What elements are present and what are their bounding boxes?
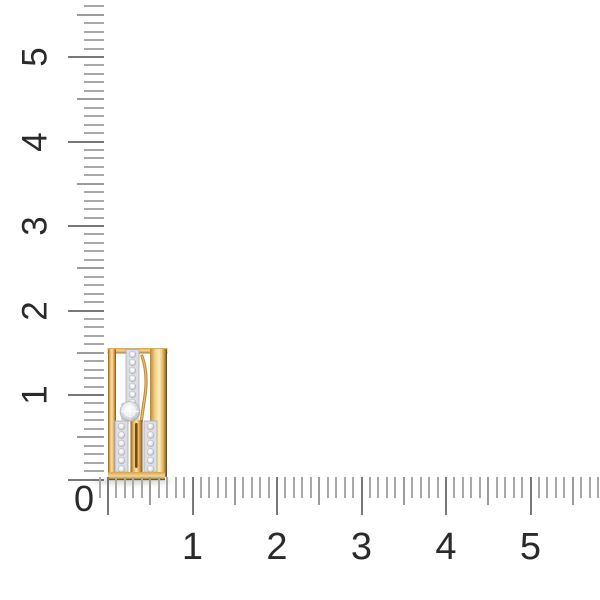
- vertical-ruler-tick: [84, 386, 104, 388]
- horizontal-ruler-tick: [175, 477, 177, 498]
- horizontal-ruler-major-tick: [361, 477, 363, 515]
- horizontal-ruler-tick: [149, 477, 151, 505]
- vertical-ruler-number-5: 5: [18, 47, 53, 66]
- horizontal-ruler-tick: [403, 477, 405, 505]
- horizontal-ruler-number-5: 5: [520, 528, 541, 566]
- vertical-ruler-tick: [84, 377, 104, 379]
- vertical-ruler-tick: [84, 276, 104, 278]
- earring-center-post: [131, 420, 143, 472]
- vertical-ruler-number-3: 3: [18, 216, 53, 235]
- vertical-ruler-tick: [84, 208, 104, 210]
- vertical-ruler-tick: [84, 402, 104, 404]
- horizontal-ruler-tick: [327, 477, 329, 498]
- horizontal-ruler-tick: [496, 477, 498, 498]
- horizontal-ruler-major-tick: [445, 477, 447, 515]
- horizontal-ruler-tick: [546, 477, 548, 498]
- vertical-ruler-tick: [84, 233, 104, 235]
- horizontal-ruler-tick: [318, 477, 320, 505]
- product-measure-view: 12345 12345 0: [0, 0, 600, 600]
- horizontal-ruler-tick: [141, 477, 143, 498]
- vertical-ruler-tick: [77, 267, 104, 269]
- vertical-ruler-tick: [84, 149, 104, 151]
- vertical-ruler-tick: [84, 157, 104, 159]
- vertical-ruler-tick: [77, 14, 104, 16]
- horizontal-ruler-tick: [99, 477, 101, 498]
- vertical-ruler-tick: [84, 107, 104, 109]
- horizontal-ruler-tick: [234, 477, 236, 505]
- vertical-ruler-tick: [84, 191, 104, 193]
- horizontal-ruler-tick: [158, 477, 160, 498]
- horizontal-ruler-tick: [589, 477, 591, 498]
- vertical-ruler-tick: [84, 301, 104, 303]
- horizontal-ruler-tick: [420, 477, 422, 498]
- vertical-ruler-tick: [84, 360, 104, 362]
- vertical-ruler-number-1: 1: [18, 385, 53, 404]
- vertical-ruler-tick: [84, 31, 104, 33]
- vertical-ruler-tick: [84, 81, 104, 83]
- vertical-ruler-major-tick: [68, 394, 104, 396]
- horizontal-ruler-tick: [555, 477, 557, 498]
- vertical-ruler-number-4: 4: [18, 132, 53, 151]
- vertical-ruler-number-2: 2: [18, 301, 53, 320]
- horizontal-ruler-tick: [200, 477, 202, 498]
- vertical-ruler-tick: [84, 174, 104, 176]
- horizontal-ruler-tick: [293, 477, 295, 498]
- horizontal-ruler-tick: [386, 477, 388, 498]
- vertical-ruler-tick: [84, 343, 104, 345]
- horizontal-ruler-major-tick: [107, 477, 109, 515]
- horizontal-ruler-tick: [284, 477, 286, 498]
- earring-photo: [107, 348, 168, 481]
- vertical-ruler-tick: [84, 217, 104, 219]
- vertical-ruler-tick: [84, 445, 104, 447]
- vertical-ruler-tick: [84, 90, 104, 92]
- horizontal-ruler-tick: [394, 477, 396, 498]
- vertical-ruler-tick: [84, 411, 104, 413]
- horizontal-ruler-tick: [580, 477, 582, 498]
- vertical-ruler-tick: [84, 124, 104, 126]
- vertical-ruler-major-tick: [68, 310, 104, 312]
- horizontal-ruler-tick: [462, 477, 464, 498]
- vertical-ruler-tick: [84, 242, 104, 244]
- ruler-origin-label: 0: [74, 481, 94, 517]
- horizontal-ruler-major-tick: [276, 477, 278, 515]
- horizontal-ruler-tick: [377, 477, 379, 498]
- vertical-ruler-tick: [84, 200, 104, 202]
- vertical-ruler-tick: [84, 48, 104, 50]
- horizontal-ruler-tick: [166, 477, 168, 498]
- horizontal-ruler-tick: [251, 477, 253, 498]
- vertical-ruler-major-tick: [68, 225, 104, 227]
- horizontal-ruler-tick: [344, 477, 346, 498]
- vertical-ruler-tick: [84, 293, 104, 295]
- vertical-ruler-tick: [84, 453, 104, 455]
- horizontal-ruler-tick: [132, 477, 134, 498]
- horizontal-ruler-tick: [225, 477, 227, 498]
- vertical-ruler-tick: [84, 335, 104, 337]
- vertical-ruler-tick: [77, 98, 104, 100]
- earring-top-diamond-strip: [126, 350, 139, 410]
- horizontal-ruler-major-tick: [530, 477, 532, 515]
- horizontal-ruler-tick: [487, 477, 489, 505]
- horizontal-ruler-tick: [428, 477, 430, 498]
- vertical-ruler-tick: [84, 250, 104, 252]
- horizontal-ruler-tick: [572, 477, 574, 505]
- vertical-ruler-tick: [84, 22, 104, 24]
- vertical-ruler-tick: [84, 166, 104, 168]
- earring-bottom-right-strip: [144, 421, 157, 472]
- vertical-ruler-tick: [84, 318, 104, 320]
- horizontal-ruler-tick: [259, 477, 261, 498]
- vertical-ruler-tick: [84, 284, 104, 286]
- horizontal-ruler-tick: [437, 477, 439, 498]
- horizontal-ruler-tick: [268, 477, 270, 498]
- horizontal-ruler-tick: [597, 477, 599, 498]
- vertical-ruler-tick: [84, 132, 104, 134]
- horizontal-ruler-number-2: 2: [266, 528, 287, 566]
- horizontal-ruler-tick: [310, 477, 312, 498]
- horizontal-ruler-number-3: 3: [351, 528, 372, 566]
- earring-bottom-left-strip: [115, 421, 128, 472]
- vertical-ruler-tick: [84, 115, 104, 117]
- horizontal-ruler-tick: [208, 477, 210, 498]
- vertical-ruler-tick: [84, 428, 104, 430]
- vertical-ruler-tick: [84, 39, 104, 41]
- horizontal-ruler-tick: [301, 477, 303, 498]
- horizontal-ruler-tick: [242, 477, 244, 498]
- vertical-ruler-tick: [77, 183, 104, 185]
- vertical-ruler-tick: [84, 462, 104, 464]
- vertical-ruler-tick: [84, 259, 104, 261]
- vertical-ruler-major-tick: [68, 141, 104, 143]
- horizontal-ruler-tick: [369, 477, 371, 498]
- horizontal-ruler-tick: [538, 477, 540, 498]
- horizontal-ruler-tick: [352, 477, 354, 498]
- horizontal-ruler-tick: [217, 477, 219, 498]
- horizontal-ruler-number-4: 4: [435, 528, 456, 566]
- vertical-ruler-tick: [84, 5, 104, 7]
- vertical-ruler-tick: [84, 369, 104, 371]
- horizontal-ruler-major-tick: [192, 477, 194, 515]
- vertical-ruler-tick: [84, 419, 104, 421]
- horizontal-ruler-tick: [115, 477, 117, 498]
- vertical-ruler-major-tick: [68, 56, 104, 58]
- horizontal-ruler-tick: [563, 477, 565, 498]
- horizontal-ruler-tick: [479, 477, 481, 498]
- horizontal-ruler-tick: [521, 477, 523, 498]
- horizontal-ruler-tick: [411, 477, 413, 498]
- vertical-ruler-tick: [84, 470, 104, 472]
- vertical-ruler-tick: [77, 352, 104, 354]
- horizontal-ruler-tick: [183, 477, 185, 498]
- horizontal-ruler-tick: [504, 477, 506, 498]
- vertical-ruler-tick: [84, 73, 104, 75]
- horizontal-ruler-tick: [470, 477, 472, 498]
- horizontal-ruler-tick: [124, 477, 126, 498]
- vertical-ruler-tick: [77, 436, 104, 438]
- horizontal-ruler-tick: [453, 477, 455, 498]
- earring-center-diamond: [120, 402, 140, 422]
- vertical-ruler-tick: [84, 64, 104, 66]
- horizontal-ruler-tick: [335, 477, 337, 498]
- horizontal-ruler-number-1: 1: [182, 528, 203, 566]
- vertical-ruler-tick: [84, 326, 104, 328]
- horizontal-ruler-tick: [513, 477, 515, 498]
